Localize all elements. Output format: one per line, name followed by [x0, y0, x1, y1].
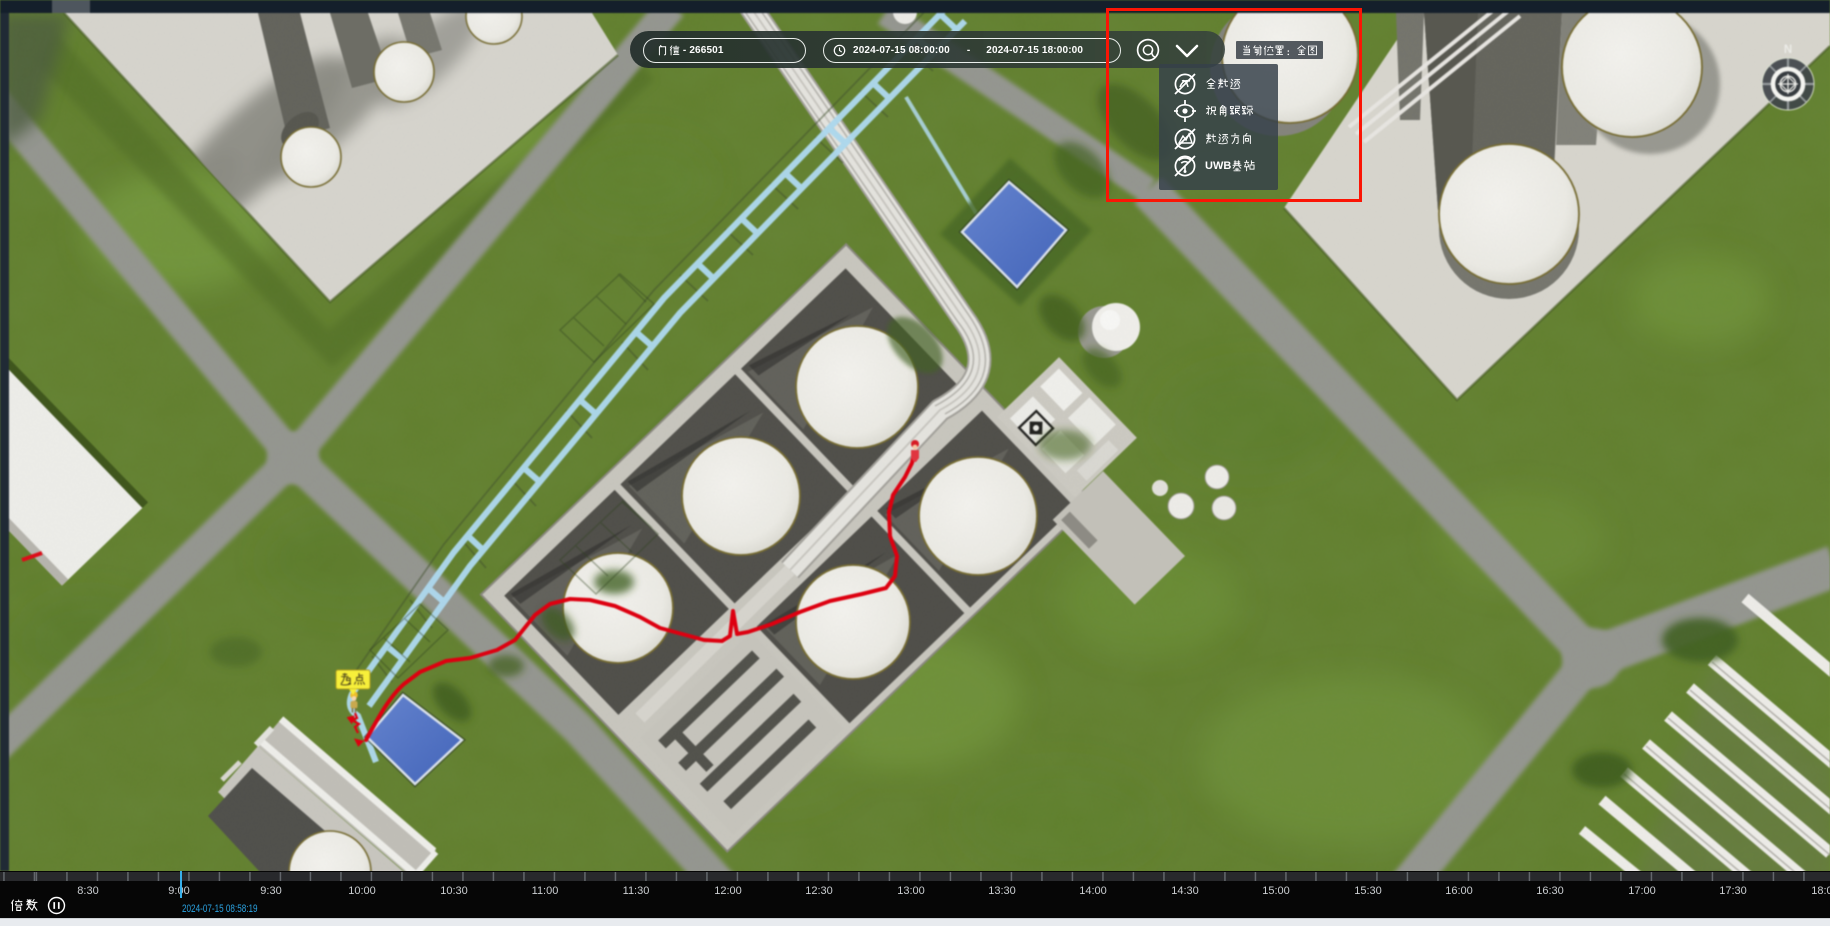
svg-text:N: N: [1784, 44, 1792, 56]
